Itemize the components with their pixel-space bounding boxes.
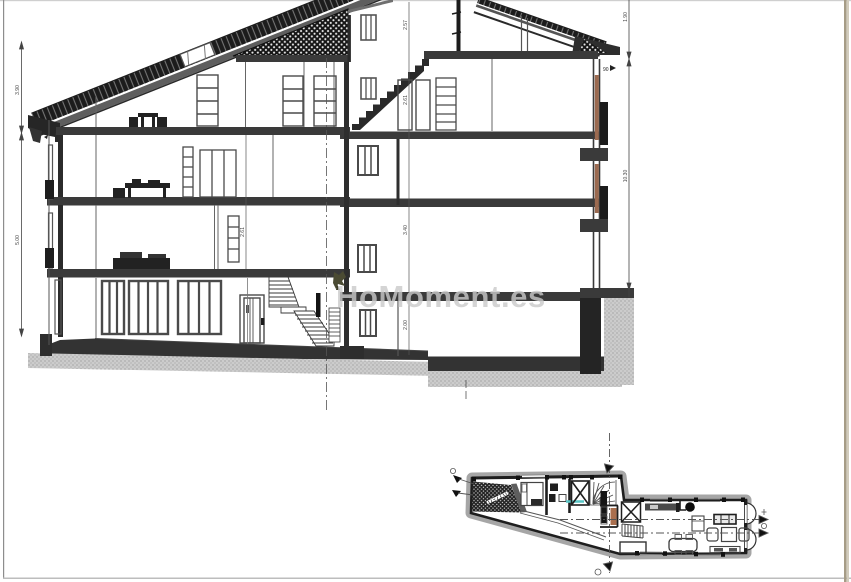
svg-text:3.90: 3.90: [15, 85, 21, 95]
svg-text:2.00: 2.00: [403, 320, 409, 330]
svg-text:HoMoment.es: HoMoment.es: [336, 279, 546, 314]
svg-text:1.90: 1.90: [623, 12, 629, 22]
svg-text:2.61: 2.61: [403, 95, 409, 105]
svg-text:10.30: 10.30: [623, 170, 629, 183]
svg-text:3.40: 3.40: [403, 225, 409, 235]
svg-text:2.57: 2.57: [403, 20, 409, 30]
svg-text:5.00: 5.00: [15, 235, 21, 245]
svg-text:90: 90: [603, 67, 609, 73]
svg-text:2.61: 2.61: [240, 227, 246, 237]
